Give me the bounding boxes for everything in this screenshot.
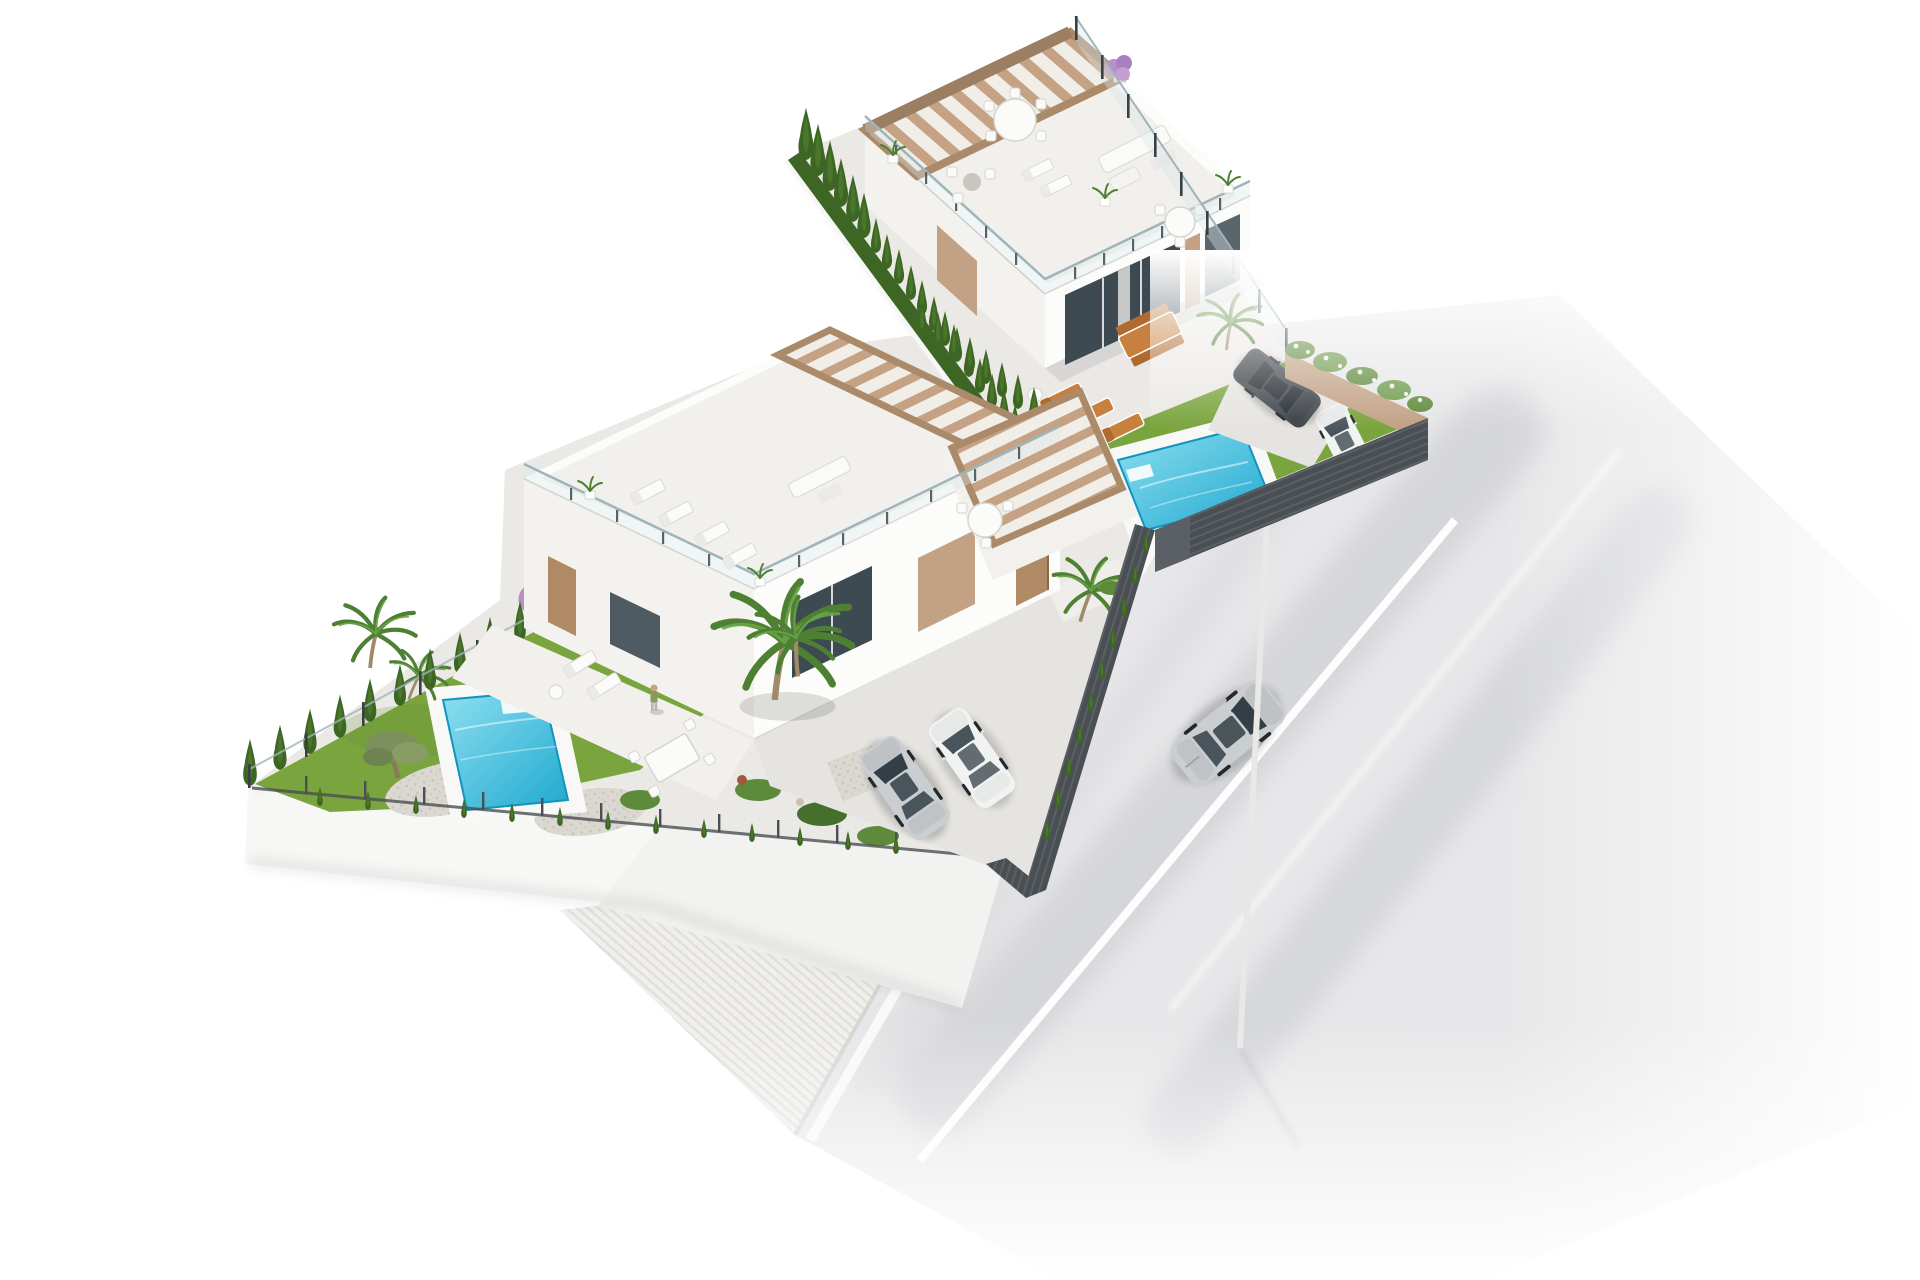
top-right-fade bbox=[1150, 250, 1920, 430]
bottom-fade bbox=[500, 1020, 1920, 1280]
side-table bbox=[549, 685, 563, 699]
sw-door bbox=[548, 556, 576, 636]
site-render: Aerial 3D render of two modern villas wi… bbox=[0, 0, 1920, 1280]
fire-pit-table bbox=[963, 173, 981, 191]
round-dining-table bbox=[994, 99, 1036, 141]
round-table bbox=[968, 503, 1002, 537]
render-canvas: Aerial 3D render of two modern villas wi… bbox=[0, 0, 1920, 1280]
